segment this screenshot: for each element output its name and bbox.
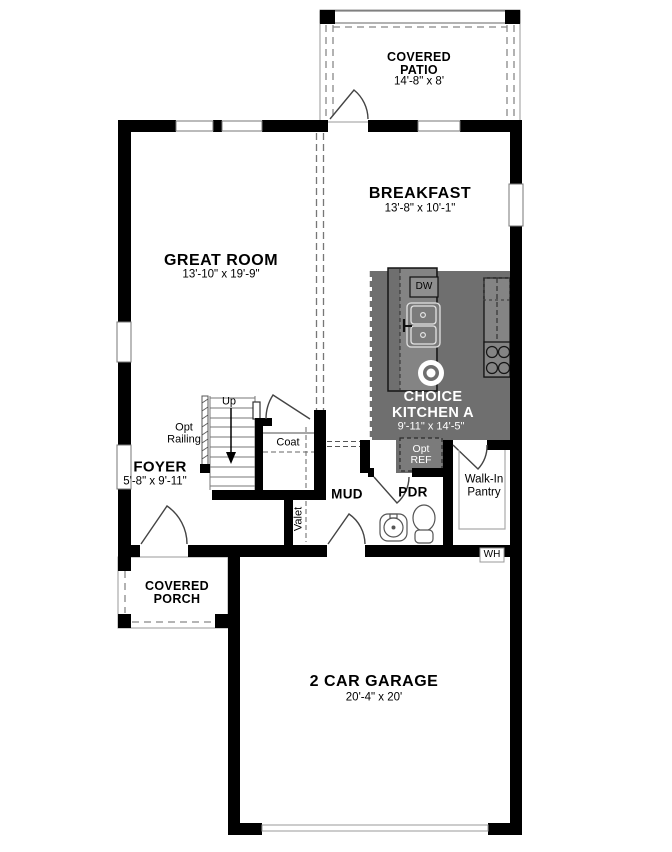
patio-post-left: [320, 10, 335, 24]
breakfast-label: BREAKFAST: [369, 186, 471, 202]
foyer-label: FOYER: [133, 460, 186, 475]
patio-beam: [320, 11, 520, 23]
window-breakfast-right: [509, 184, 523, 226]
kitchen-option-bullseye-icon: [418, 360, 444, 386]
kitchen-label-line2: KITCHEN A: [392, 406, 474, 421]
window-greatroom-top-1: [176, 121, 213, 131]
stair-treads: [210, 396, 255, 490]
foyer-dims: 5'-8" x 9'-11": [123, 476, 186, 488]
dishwasher-label: DW: [416, 282, 433, 292]
mud-opening-header: [327, 442, 360, 447]
pedestal-sink-icon: [380, 514, 407, 541]
newel-post: [253, 402, 260, 419]
great-room-label: GREAT ROOM: [164, 253, 278, 269]
floor-plan: COVERED PATIO 14'-8" x 8' BREAKFAST 13'-…: [0, 0, 672, 852]
kitchen-dims: 9'-11" x 14'-5": [398, 422, 465, 433]
greatroom-breakfast-separator: [317, 133, 324, 410]
great-room-dims: 13'-10" x 19'-9": [182, 269, 259, 281]
coat-closet-door: [266, 395, 310, 419]
patio-dims: 14'-8" x 8': [394, 76, 444, 88]
floorplan-linework: [0, 0, 672, 852]
patio-door: [330, 90, 368, 119]
kitchen-label-line1: CHOICE: [404, 390, 463, 405]
staircase: [200, 396, 260, 490]
patio-post-right: [505, 10, 520, 24]
kitchen-counter-right: [484, 278, 510, 377]
garage-label: 2 CAR GARAGE: [310, 674, 439, 690]
up-label: Up: [222, 397, 236, 408]
pdr-label: PDR: [398, 485, 427, 499]
garage-dims: 20'-4" x 20': [346, 692, 402, 704]
pantry-label-line1: Walk-In: [465, 474, 504, 486]
mud-garage-door: [328, 514, 365, 544]
pantry-door: [453, 445, 487, 469]
window-greatroom-left: [117, 322, 131, 362]
porch-label-line1: COVERED: [145, 580, 209, 593]
patio-label-line1: COVERED: [387, 51, 451, 64]
porch-label-line2: PORCH: [154, 593, 201, 606]
porch-post-bottomright: [215, 614, 228, 628]
valet-label: Valet: [294, 507, 305, 531]
breakfast-dims: 13'-8" x 10'-1": [385, 203, 456, 215]
stair-direction-arrow: [226, 408, 236, 464]
opt-ref-label-line1: Opt: [413, 444, 430, 455]
opt-railing-bar: [200, 396, 210, 473]
toilet-icon: [413, 505, 435, 543]
front-door: [141, 506, 187, 544]
pantry-label-line2: Pantry: [467, 487, 500, 499]
water-heater-label: WH: [484, 550, 501, 560]
garage-door: [262, 825, 488, 831]
kitchen-sink-icon: [404, 303, 440, 347]
window-breakfast-top: [418, 121, 460, 131]
powder-room-fixtures: [380, 505, 435, 543]
opt-railing-label-line2: Railing: [167, 435, 201, 446]
window-greatroom-top-2: [222, 121, 262, 131]
mud-label: MUD: [331, 487, 363, 501]
porch-post-topleft: [118, 557, 131, 571]
opt-railing-label-line1: Opt: [175, 423, 193, 434]
porch-post-bottomleft: [118, 614, 131, 628]
opt-ref-label-line2: REF: [411, 455, 432, 466]
coat-label: Coat: [273, 438, 302, 449]
